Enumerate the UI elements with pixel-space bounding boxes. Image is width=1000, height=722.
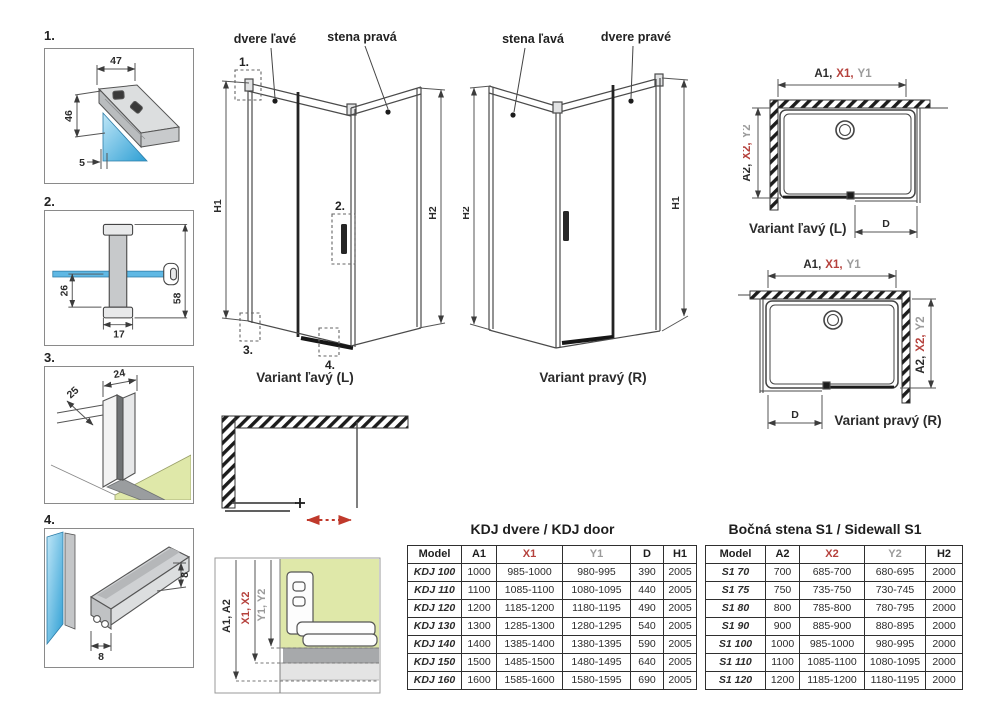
- column-header: Y1: [563, 546, 631, 564]
- a-reference-label: A1, A2: [221, 599, 233, 633]
- column-header: A1: [462, 546, 497, 564]
- table-row: S1 1001000985-1000980-9952000: [706, 636, 963, 654]
- value-cell: 880-895: [865, 618, 926, 636]
- column-header: Model: [706, 546, 766, 564]
- model-cell: S1 80: [706, 600, 766, 618]
- value-cell: 1400: [462, 636, 497, 654]
- dimension-47: 47: [97, 55, 135, 85]
- value-cell: 1380-1395: [563, 636, 631, 654]
- value-cell: 2000: [926, 672, 963, 690]
- svg-text:5: 5: [79, 157, 85, 169]
- table-row: KDJ 11011001085-11001080-10954402005: [408, 582, 697, 600]
- value-cell: 780-795: [865, 600, 926, 618]
- detail-2-box: 26 17 58: [44, 210, 194, 346]
- detail-1-box: 47 46 5: [44, 48, 194, 184]
- value-cell: 1080-1095: [865, 654, 926, 672]
- detail-4-number: 4.: [44, 512, 55, 527]
- dimension-25: 25: [57, 384, 103, 425]
- end-knob: [164, 263, 179, 284]
- value-cell: 1100: [462, 582, 497, 600]
- value-cell: 540: [631, 618, 664, 636]
- value-cell: 1200: [462, 600, 497, 618]
- value-cell: 2005: [664, 636, 697, 654]
- model-cell: S1 100: [706, 636, 766, 654]
- variant-caption: Variant pravý (R): [539, 370, 646, 385]
- value-cell: 590: [631, 636, 664, 654]
- x-reference-label: X1, X2: [240, 591, 252, 624]
- top-dimension: [768, 270, 896, 288]
- model-cell: S1 90: [706, 618, 766, 636]
- variant-caption: Variant ľavý (L): [749, 221, 847, 236]
- table-row: KDJ 12012001185-12001180-11954902005: [408, 600, 697, 618]
- value-cell: 690: [631, 672, 664, 690]
- wall-label: stena pravá: [327, 30, 397, 44]
- value-cell: 2000: [926, 636, 963, 654]
- model-cell: S1 120: [706, 672, 766, 690]
- value-cell: 1300: [462, 618, 497, 636]
- spec-table: ModelA1X1Y1DH1KDJ 1001000985-1000980-995…: [407, 545, 697, 690]
- svg-text:D: D: [882, 218, 890, 230]
- dimension-8-width: 8: [91, 631, 111, 663]
- model-cell: KDJ 130: [408, 618, 462, 636]
- dimension-26: 26: [59, 274, 103, 307]
- door-label: dvere pravé: [601, 30, 671, 44]
- d-dimension: D: [768, 395, 822, 429]
- header-row: ModelA1X1Y1DH1: [408, 546, 697, 564]
- plan-left-svg: A1,X1,Y1 A2,X2,Y2 D Variant ľavý (L): [743, 63, 955, 245]
- value-cell: 980-995: [563, 564, 631, 582]
- value-cell: 1485-1500: [497, 654, 563, 672]
- value-cell: 1180-1195: [563, 600, 631, 618]
- leader-dot: [385, 109, 390, 114]
- leader-dot: [272, 98, 277, 103]
- table-row: KDJ 14014001385-14001380-13955902005: [408, 636, 697, 654]
- value-cell: 2000: [926, 618, 963, 636]
- value-cell: 1285-1300: [497, 618, 563, 636]
- value-cell: 1585-1600: [497, 672, 563, 690]
- value-cell: 985-1000: [800, 636, 865, 654]
- value-cell: 730-745: [865, 582, 926, 600]
- section-detail-svg: Y1, Y2 X1, X2 A1, A2: [203, 550, 390, 704]
- sliding-schematic: [210, 408, 412, 535]
- svg-text:H2: H2: [463, 206, 472, 220]
- handle-mark: [823, 382, 830, 389]
- value-cell: 1000: [462, 564, 497, 582]
- value-cell: 2005: [664, 672, 697, 690]
- glass-panel: [47, 532, 75, 644]
- glass-lines: [225, 422, 357, 511]
- dim-a2x2y2-label: A2,X2,Y2: [915, 316, 927, 373]
- table-row: KDJ 15015001485-15001480-14956402005: [408, 654, 697, 672]
- model-cell: KDJ 100: [408, 564, 462, 582]
- column-header: X1: [497, 546, 563, 564]
- value-cell: 2005: [664, 564, 697, 582]
- column-header: D: [631, 546, 664, 564]
- value-cell: 2005: [664, 582, 697, 600]
- column-header: Model: [408, 546, 462, 564]
- d-dimension: D: [855, 205, 917, 238]
- plan-right-svg: A1,X1,Y1 A2,X2,Y2 D Variant pravý (R): [738, 253, 955, 450]
- value-cell: 640: [631, 654, 664, 672]
- technical-drawing-sheet: 1. 47 46 5 2. 26: [0, 0, 1000, 722]
- handle-mark: [847, 192, 854, 199]
- value-cell: 440: [631, 582, 664, 600]
- spec-table: ModelA2X2Y2H2S1 70700685-700680-6952000S…: [705, 545, 963, 690]
- section-detail: Y1, Y2 X1, X2 A1, A2: [203, 550, 390, 709]
- threshold-profile: [91, 547, 189, 629]
- door-handle: [563, 211, 569, 241]
- value-cell: 1480-1495: [563, 654, 631, 672]
- value-cell: 1385-1400: [497, 636, 563, 654]
- svg-text:8: 8: [179, 572, 191, 578]
- wall-profile: [103, 393, 135, 487]
- column-header: X2: [800, 546, 865, 564]
- model-cell: S1 75: [706, 582, 766, 600]
- value-cell: 885-900: [800, 618, 865, 636]
- value-cell: 700: [766, 564, 800, 582]
- dim-a2x2y2-label: A2,X2,Y2: [743, 124, 753, 181]
- detail-1-number: 1.: [44, 28, 55, 43]
- model-cell: S1 110: [706, 654, 766, 672]
- svg-text:H2: H2: [427, 206, 439, 220]
- value-cell: 785-800: [800, 600, 865, 618]
- value-cell: 490: [631, 600, 664, 618]
- value-cell: 1180-1195: [865, 672, 926, 690]
- handle-cross: [295, 498, 305, 508]
- s1-table-title: Bočná stena S1 / Sidewall S1: [703, 521, 947, 537]
- elevation-left-svg: dvere ľavé stena pravá 1. 2. 3. 4. H1: [213, 28, 461, 390]
- table-row: KDJ 1001000985-1000980-9953902005: [408, 564, 697, 582]
- svg-text:H1: H1: [213, 199, 224, 213]
- value-cell: 1280-1295: [563, 618, 631, 636]
- value-cell: 390: [631, 564, 664, 582]
- dimension-17: 17: [103, 318, 132, 340]
- leader-dot: [510, 112, 515, 117]
- svg-text:17: 17: [113, 329, 125, 340]
- shower-tray: [766, 301, 898, 388]
- svg-text:46: 46: [63, 110, 75, 122]
- model-cell: KDJ 120: [408, 600, 462, 618]
- value-cell: 750: [766, 582, 800, 600]
- svg-text:H1: H1: [670, 196, 682, 210]
- detail-1-drawing: 47 46 5: [45, 49, 191, 180]
- callout-1: 1.: [239, 55, 249, 69]
- model-cell: S1 70: [706, 564, 766, 582]
- detail-2-drawing: 26 17 58: [45, 211, 191, 342]
- dim-a1x1y1-label: A1,X1,Y1: [803, 259, 861, 271]
- column-header: A2: [766, 546, 800, 564]
- model-cell: KDJ 110: [408, 582, 462, 600]
- variant-caption: Variant ľavý (L): [256, 370, 354, 385]
- door-label: dvere ľavé: [234, 32, 297, 46]
- leader-dot: [628, 98, 633, 103]
- detail-4-drawing: 8 8: [45, 529, 191, 664]
- svg-text:26: 26: [59, 285, 70, 297]
- sliding-schematic-svg: [210, 408, 412, 530]
- detail-3-number: 3.: [44, 350, 55, 365]
- svg-text:25: 25: [65, 384, 82, 401]
- value-cell: 980-995: [865, 636, 926, 654]
- model-cell: KDJ 160: [408, 672, 462, 690]
- height-dimensions: H2 H1: [463, 78, 688, 331]
- value-cell: 685-700: [800, 564, 865, 582]
- top-dimension: [778, 79, 906, 97]
- table-row: S1 90900885-900880-8952000: [706, 618, 963, 636]
- kdj-table-title: KDJ dvere / KDJ door: [407, 521, 678, 537]
- plan-left-variant: A1,X1,Y1 A2,X2,Y2 D Variant ľavý (L): [743, 63, 955, 250]
- value-cell: 1500: [462, 654, 497, 672]
- shower-tray: [780, 110, 915, 198]
- value-cell: 2005: [664, 618, 697, 636]
- table-row: KDJ 16016001585-16001580-15956902005: [408, 672, 697, 690]
- detail-3-drawing: 24 25: [45, 367, 191, 500]
- value-cell: 2000: [926, 654, 963, 672]
- table-row: KDJ 13013001285-13001280-12955402005: [408, 618, 697, 636]
- value-cell: 1185-1200: [800, 672, 865, 690]
- value-cell: 2000: [926, 600, 963, 618]
- table-row: S1 80800785-800780-7952000: [706, 600, 963, 618]
- value-cell: 1580-1595: [563, 672, 631, 690]
- variant-caption: Variant pravý (R): [834, 413, 941, 428]
- value-cell: 1000: [766, 636, 800, 654]
- model-cell: KDJ 140: [408, 636, 462, 654]
- value-cell: 1080-1095: [563, 582, 631, 600]
- header-row: ModelA2X2Y2H2: [706, 546, 963, 564]
- detail-4-box: 8 8: [44, 528, 194, 668]
- column-header: H1: [664, 546, 697, 564]
- value-cell: 2000: [926, 564, 963, 582]
- elevation-left-variant: dvere ľavé stena pravá 1. 2. 3. 4. H1: [213, 28, 461, 395]
- table-row: S1 70700685-700680-6952000: [706, 564, 963, 582]
- svg-text:24: 24: [113, 367, 127, 381]
- plan-right-variant: A1,X1,Y1 A2,X2,Y2 D Variant pravý (R): [738, 253, 955, 455]
- value-cell: 1085-1100: [800, 654, 865, 672]
- table-row: S1 12012001185-12001180-11952000: [706, 672, 963, 690]
- value-cell: 985-1000: [497, 564, 563, 582]
- value-cell: 1100: [766, 654, 800, 672]
- detail-2-number: 2.: [44, 194, 55, 209]
- kdj-table: ModelA1X1Y1DH1KDJ 1001000985-1000980-995…: [407, 545, 697, 690]
- wall-label: stena ľavá: [502, 32, 564, 46]
- value-cell: 2005: [664, 654, 697, 672]
- dimension-24: 24: [103, 367, 137, 397]
- svg-text:58: 58: [172, 292, 183, 304]
- elevation-right-variant: stena ľavá dvere pravé H2 H1 Variant pra…: [463, 28, 715, 395]
- value-cell: 1185-1200: [497, 600, 563, 618]
- table-row: S1 75750735-750730-7452000: [706, 582, 963, 600]
- model-cell: KDJ 150: [408, 654, 462, 672]
- y-reference-label: Y1, Y2: [256, 589, 268, 622]
- value-cell: 1200: [766, 672, 800, 690]
- callout-3: 3.: [243, 343, 253, 357]
- s1-table: ModelA2X2Y2H2S1 70700685-700680-6952000S…: [705, 545, 963, 690]
- callout-2: 2.: [335, 199, 345, 213]
- value-cell: 2005: [664, 600, 697, 618]
- dim-a1x1y1-label: A1,X1,Y1: [814, 68, 872, 80]
- table-row: S1 11011001085-11001080-10952000: [706, 654, 963, 672]
- value-cell: 900: [766, 618, 800, 636]
- value-cell: 1085-1100: [497, 582, 563, 600]
- column-header: Y2: [865, 546, 926, 564]
- svg-text:8: 8: [98, 651, 104, 663]
- value-cell: 680-695: [865, 564, 926, 582]
- value-cell: 2000: [926, 582, 963, 600]
- door-handle: [341, 224, 347, 254]
- value-cell: 735-750: [800, 582, 865, 600]
- column-header: H2: [926, 546, 963, 564]
- value-cell: 800: [766, 600, 800, 618]
- svg-text:47: 47: [110, 55, 122, 67]
- svg-text:D: D: [791, 409, 799, 421]
- value-cell: 1600: [462, 672, 497, 690]
- detail-3-box: 24 25: [44, 366, 194, 504]
- walls: [222, 416, 408, 508]
- elevation-right-svg: stena ľavá dvere pravé H2 H1 Variant pra…: [463, 28, 715, 390]
